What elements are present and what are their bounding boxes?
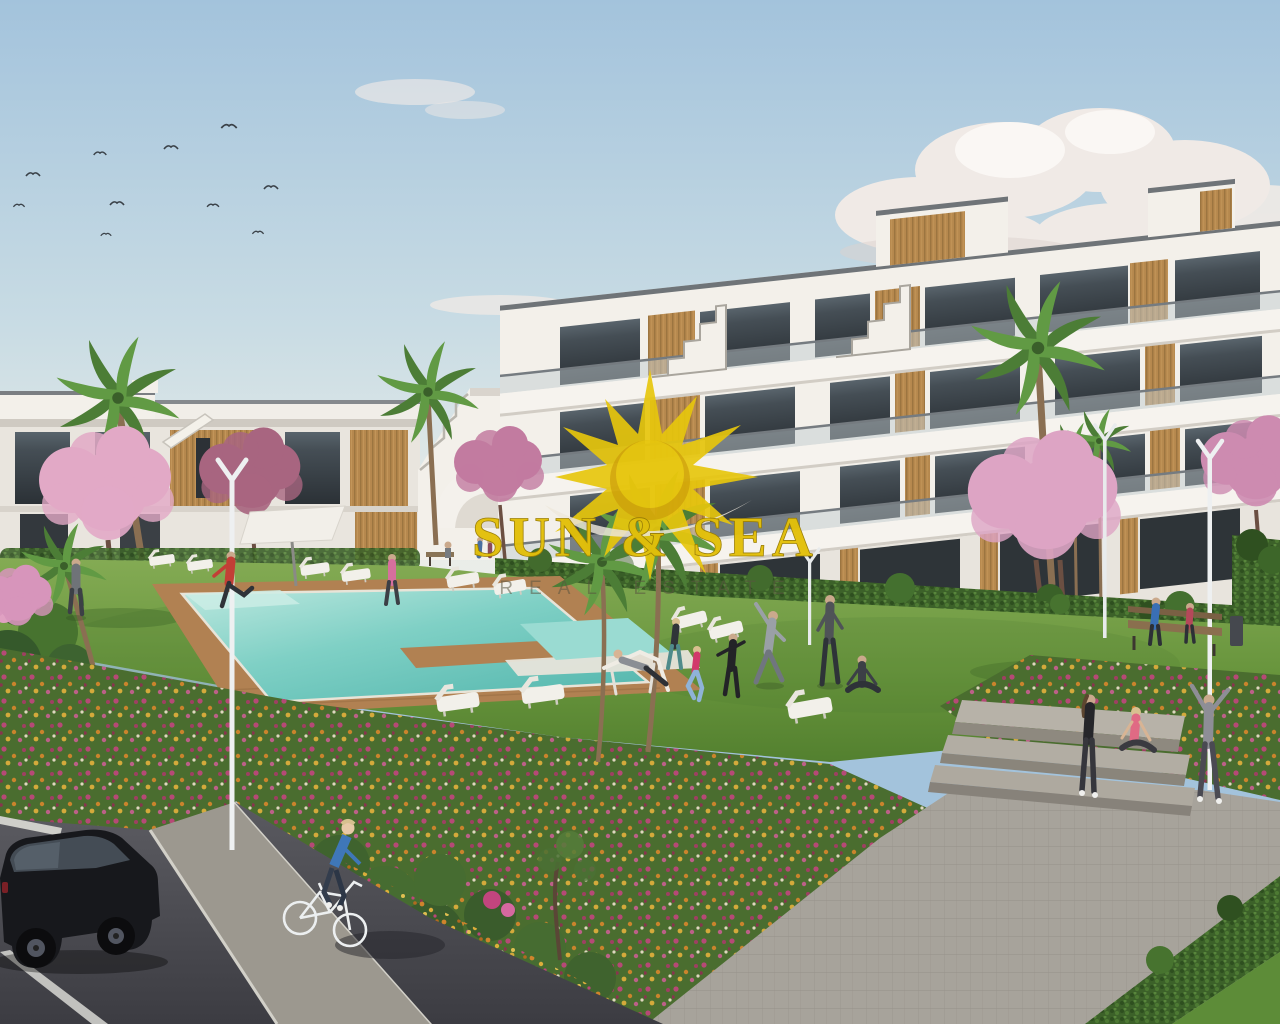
watermark-subtitle: REAL ESTATE [499,578,800,599]
watermark-title: SUN & SEA [472,506,818,569]
tail-light [2,882,8,893]
render-image: SUN & SEA REAL ESTATE [0,0,1280,1024]
trash-bin [1230,616,1243,646]
scene-canvas: SUN & SEA REAL ESTATE [0,0,1280,1024]
